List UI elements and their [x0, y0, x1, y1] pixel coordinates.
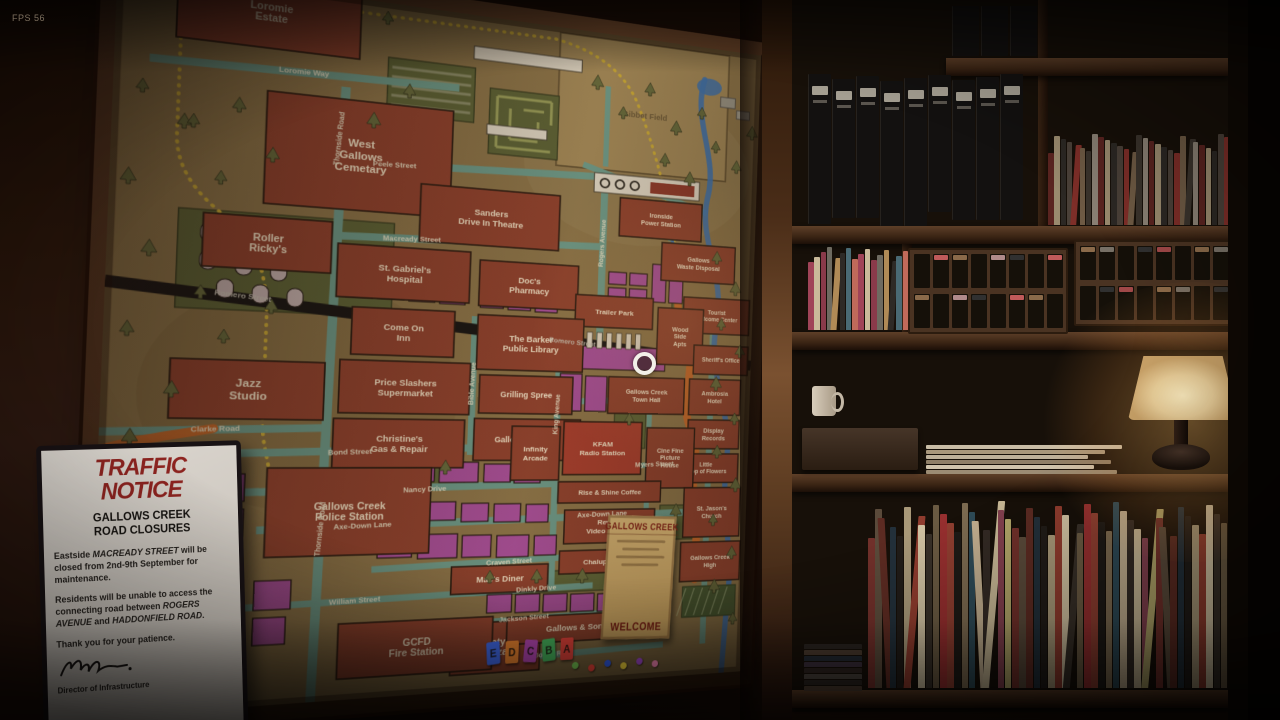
- letter-tile[interactable]: E: [486, 641, 500, 666]
- record-spine: [1136, 135, 1142, 225]
- map-label: InfinityArcade: [523, 445, 549, 462]
- notice-paragraph-2: Residents will be unable to access the c…: [55, 585, 232, 631]
- trailer: [616, 333, 622, 349]
- vinyl-record-spine: [1041, 526, 1048, 688]
- record-spine: [1206, 148, 1212, 225]
- record-spine: [896, 256, 902, 330]
- vinyl-record-spine: [918, 525, 925, 688]
- welcome-poster-title: GALLOWS CREEK: [605, 521, 679, 535]
- vinyl-record-spine: [1019, 537, 1026, 688]
- cassette-slot: [1009, 294, 1025, 328]
- map-label: Christine'sGas & Repair: [370, 434, 428, 454]
- vinyl-record-spine: [954, 532, 961, 688]
- record-spine: [1193, 142, 1199, 225]
- street: [606, 86, 609, 166]
- magnet-dot[interactable]: [652, 660, 659, 667]
- media-box-spine: [880, 81, 903, 226]
- map-label: Bond Street: [328, 448, 372, 457]
- record-spine: [1174, 153, 1180, 225]
- map-label: Grilling Spree: [500, 390, 552, 399]
- cassette-slot: [990, 294, 1006, 328]
- building-block: [496, 535, 529, 558]
- record-spine: [1111, 143, 1117, 225]
- welcome-poster-text-line: [617, 540, 665, 543]
- welcome-poster-text-line: [622, 548, 659, 551]
- building-block: [515, 594, 540, 613]
- cassette-slot: [1028, 254, 1044, 288]
- cassette-slot: [1137, 246, 1153, 280]
- record-spine: [1149, 141, 1155, 225]
- welcome-poster-text-line: [616, 555, 664, 558]
- shelf-board: [792, 690, 1228, 708]
- cassette-organizer: [908, 248, 1068, 334]
- record-spine: [1048, 153, 1054, 225]
- cassette-slot: [933, 254, 949, 288]
- building-block: [584, 376, 607, 412]
- notice-subtitle: GALLOWS CREEK ROAD CLOSURES: [53, 506, 230, 542]
- media-box-spine: [832, 79, 855, 218]
- hedge-maze: [551, 103, 552, 126]
- record-spine: [846, 248, 852, 330]
- wall-corner-shadow: [740, 0, 764, 720]
- traffic-notice-sign[interactable]: TRAFFIC NOTICE GALLOWS CREEK ROAD CLOSUR…: [36, 440, 248, 720]
- vinyl-record-spine: [890, 527, 897, 688]
- cassette-slot: [1047, 254, 1063, 288]
- building-block: [462, 535, 492, 558]
- record-spine: [1161, 147, 1167, 225]
- record-spine: [1155, 144, 1161, 225]
- magnet-dot[interactable]: [636, 658, 643, 665]
- cassette-slot: [971, 254, 987, 288]
- cassette-slot: [1047, 294, 1063, 328]
- cassette-slot: [933, 294, 949, 328]
- trailer: [597, 332, 603, 348]
- stacked-record: [804, 656, 862, 661]
- record-spine: [852, 259, 858, 330]
- map-label: RollerRicky's: [249, 232, 288, 257]
- record-spine: [1212, 151, 1218, 225]
- cassette-slot: [1080, 246, 1096, 280]
- map-label: Clarke Road: [191, 424, 240, 433]
- vinyl-record-spine: [1026, 508, 1033, 688]
- record-spine: [1105, 140, 1111, 225]
- game-scene: LoromieEstateWestGallowsCemetarySandersD…: [0, 0, 1280, 720]
- wall-right-edge: [1248, 0, 1280, 720]
- vinyl-record-spine: [962, 503, 969, 688]
- bookshelf-left-stile: [762, 0, 792, 720]
- cassette-slot: [1009, 254, 1025, 288]
- magnet-dot[interactable]: [572, 662, 579, 670]
- welcome-poster-footer: WELCOME: [610, 620, 662, 634]
- letter-tile[interactable]: D: [505, 640, 519, 663]
- building-block: [543, 593, 567, 612]
- building-block: [534, 535, 557, 555]
- cassette-slot: [914, 294, 930, 328]
- welcome-poster-text-line: [621, 563, 658, 566]
- record-spine: [808, 262, 814, 330]
- small-box: [952, 6, 979, 56]
- cassette-slot: [1099, 246, 1115, 280]
- record-spine: [1218, 134, 1224, 225]
- vinyl-record-spine: [868, 538, 875, 688]
- letter-tile[interactable]: A: [560, 637, 574, 660]
- stacked-record: [804, 680, 862, 685]
- map-label: Rise & Shine Coffee: [578, 488, 641, 496]
- record-spine: [877, 255, 883, 330]
- media-box-spine: [952, 80, 975, 220]
- storage-box: [802, 428, 918, 470]
- record-spine: [814, 257, 820, 330]
- record-spine: [1061, 139, 1067, 225]
- hedge-maze: [496, 96, 498, 147]
- vinyl-record-spine: [998, 510, 1005, 688]
- vinyl-record-spine: [1106, 531, 1113, 688]
- magnet-dot[interactable]: [604, 660, 611, 667]
- cassette-slot: [990, 254, 1006, 288]
- vinyl-record-spine: [1048, 535, 1055, 688]
- record-spine: [1143, 138, 1149, 225]
- map-label: Sheriff's Office: [702, 357, 740, 364]
- media-box-spine: [808, 74, 831, 224]
- media-box-spine: [1000, 74, 1023, 220]
- map-label: DisplayRecords: [702, 427, 726, 441]
- vinyl-record-spine: [1034, 517, 1041, 688]
- bookshelf: [756, 0, 1280, 720]
- record-spine: [858, 254, 864, 330]
- building-block: [609, 272, 627, 285]
- map-label: WoodSideApts: [672, 326, 689, 348]
- record-spine: [1168, 150, 1174, 225]
- vinyl-record-spine: [940, 514, 947, 688]
- map-label: Mac's Diner: [476, 574, 524, 585]
- tombstone: [287, 288, 304, 307]
- trailer: [606, 333, 612, 349]
- cassette-slot: [1194, 246, 1210, 280]
- vinyl-record-spine: [1055, 506, 1062, 688]
- record-spine: [865, 249, 871, 330]
- cassette-slot: [952, 294, 968, 328]
- shelf-divider: [1038, 0, 1048, 232]
- record-spine: [1080, 148, 1086, 225]
- cassette-slot: [1028, 294, 1044, 328]
- mug: [812, 386, 836, 416]
- small-box: [1010, 6, 1037, 56]
- letter-tile[interactable]: B: [542, 638, 556, 662]
- vinyl-record-spine: [926, 534, 933, 688]
- shelf-board: [946, 58, 1228, 76]
- letter-tile[interactable]: C: [523, 639, 538, 662]
- lamp-base: [1152, 444, 1210, 470]
- vinyl-record-spine: [1005, 519, 1012, 688]
- record-spine: [840, 253, 846, 330]
- building-block: [487, 594, 512, 613]
- media-box-spine: [904, 78, 927, 226]
- lamp-shade: [1128, 356, 1238, 420]
- small-box: [981, 6, 1008, 56]
- building-block: [494, 504, 521, 522]
- vinyl-record-spine: [1077, 533, 1084, 688]
- stacked-record: [804, 668, 862, 673]
- building-block: [253, 580, 291, 611]
- media-box-spine: [976, 77, 999, 220]
- welcome-poster[interactable]: GALLOWS CREEK WELCOME: [601, 515, 677, 640]
- record-spine: [1117, 146, 1123, 225]
- stacked-record: [804, 650, 862, 655]
- vinyl-record-spine: [1012, 528, 1019, 688]
- building-block: [461, 503, 489, 522]
- record-spine: [1098, 137, 1104, 225]
- map-label: Price SlashersSupermarket: [374, 378, 438, 399]
- magnet-dot[interactable]: [588, 664, 595, 671]
- cassette-slot: [952, 254, 968, 288]
- bookshelf-right-stile: [1228, 0, 1248, 720]
- media-box-spine: [856, 76, 879, 218]
- notice-paragraph-1: Eastside MACREADY STREET will be closed …: [54, 542, 231, 586]
- media-box-spine: [928, 75, 951, 212]
- rocks: [720, 97, 735, 109]
- vinyl-record-spine: [1084, 504, 1091, 688]
- building-block: [630, 273, 648, 286]
- cassette-slot: [1156, 246, 1172, 280]
- record-spine: [1092, 134, 1098, 225]
- trailer: [635, 334, 641, 350]
- map-label: Myers Street: [635, 460, 674, 468]
- vinyl-record-spine: [897, 536, 904, 688]
- trailer: [626, 334, 632, 350]
- building-block: [570, 593, 594, 612]
- cassette-slot: [971, 294, 987, 328]
- stacked-record: [804, 686, 862, 691]
- record-spine: [1199, 145, 1205, 225]
- stacked-record: [804, 644, 862, 649]
- fps-counter: FPS 56: [12, 13, 45, 23]
- cassette-slot: [914, 254, 930, 288]
- record-spine: [1086, 151, 1092, 225]
- notice-title: TRAFFIC NOTICE: [51, 453, 228, 506]
- vinyl-record-spine: [947, 523, 954, 688]
- record-spine: [871, 260, 877, 330]
- vinyl-record-spine: [1098, 522, 1105, 688]
- record-spine: [1054, 136, 1060, 225]
- cassette-slot: [1175, 246, 1191, 280]
- cassette-slot: [1118, 246, 1134, 280]
- vinyl-record-spine: [933, 505, 940, 688]
- crosshair-cursor: [633, 352, 656, 375]
- magnet-dot[interactable]: [620, 662, 627, 669]
- stacked-record: [804, 674, 862, 679]
- cassette-slot: [1213, 246, 1229, 280]
- building-block: [526, 504, 549, 522]
- building-block: [484, 464, 511, 482]
- stacked-record: [804, 662, 862, 667]
- vinyl-record-spine: [1091, 513, 1098, 688]
- building-block: [252, 617, 286, 646]
- record-spine: [821, 252, 827, 330]
